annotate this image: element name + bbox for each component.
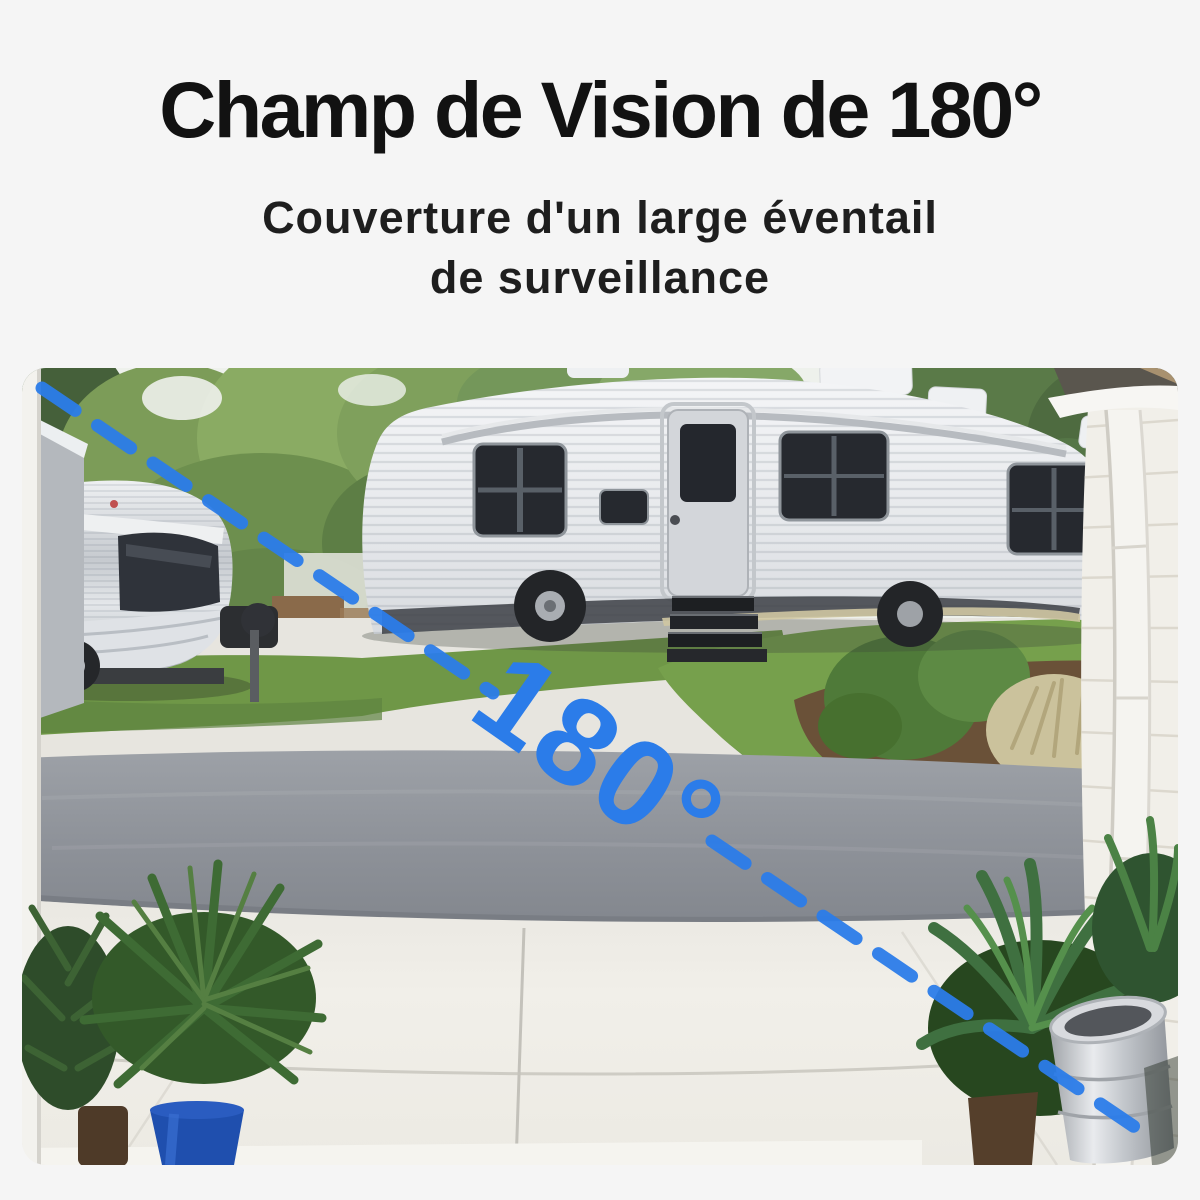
page-subtitle: Couverture d'un large éventail de survei… bbox=[0, 188, 1200, 308]
subtitle-line-2: de surveillance bbox=[0, 248, 1200, 308]
page-title: Champ de Vision de 180° bbox=[0, 58, 1200, 162]
page: { "page": { "background_color": "#f5f5f5… bbox=[0, 0, 1200, 1200]
motorhome-door bbox=[662, 404, 754, 600]
blue-pot bbox=[150, 1101, 244, 1165]
entry-steps bbox=[667, 596, 767, 662]
subtitle-line-1: Couverture d'un large éventail bbox=[0, 188, 1200, 248]
camera-view-photo: 180° bbox=[22, 368, 1178, 1165]
camera-view-scene: 180° bbox=[22, 368, 1178, 1165]
